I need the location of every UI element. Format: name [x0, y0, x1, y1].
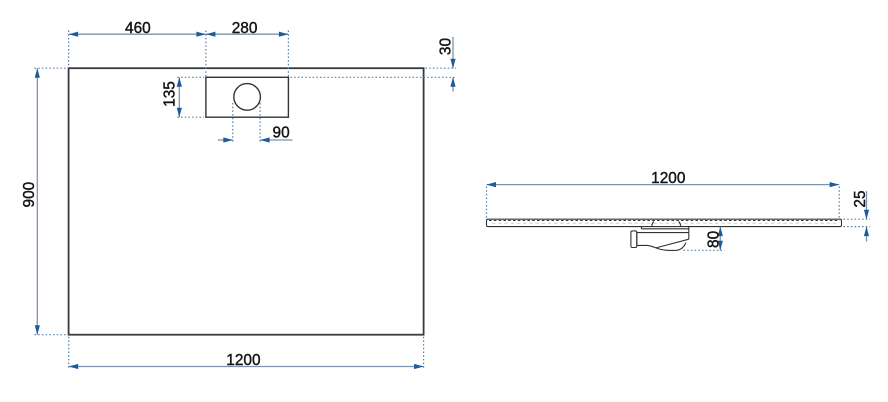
- svg-text:1200: 1200: [651, 170, 685, 187]
- svg-text:1200: 1200: [226, 352, 260, 369]
- svg-text:25: 25: [852, 190, 869, 207]
- svg-text:900: 900: [21, 182, 38, 208]
- svg-text:280: 280: [232, 20, 258, 37]
- svg-text:460: 460: [125, 20, 151, 37]
- svg-text:135: 135: [161, 81, 178, 107]
- svg-text:30: 30: [438, 38, 455, 55]
- svg-text:90: 90: [273, 125, 290, 142]
- svg-text:80: 80: [706, 231, 723, 248]
